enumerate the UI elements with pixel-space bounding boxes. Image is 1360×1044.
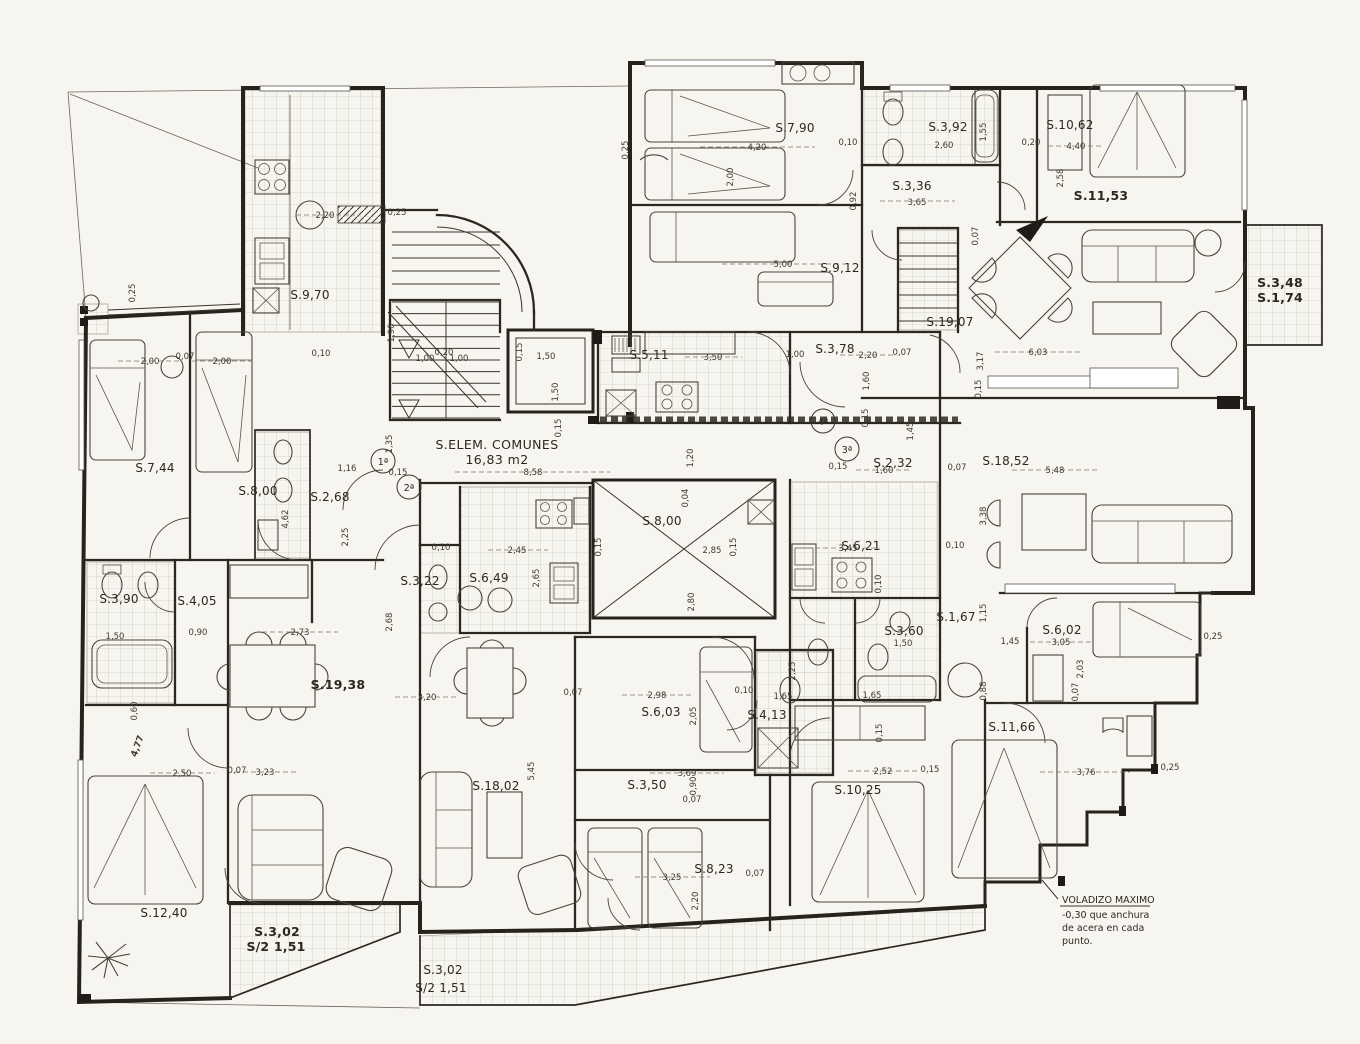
dim-label: 0,25 (1161, 763, 1180, 773)
dim-label: 3,50 (704, 353, 723, 363)
dim-label: 2,85 (703, 546, 722, 556)
dim-label: 1,55 (979, 123, 989, 142)
unit-marker-2: 2ª (404, 483, 415, 494)
dim-label: 2,68 (385, 613, 395, 632)
dim-label: 2,52 (874, 767, 893, 777)
dim-label: 5,45 (527, 762, 537, 781)
room-area-label: S.7,44 (135, 461, 174, 475)
dim-label: 3,20 (418, 693, 437, 703)
dim-label: 1,00 (416, 354, 435, 364)
dim-label: 2,60 (935, 141, 954, 151)
dim-label: 3,25 (663, 873, 682, 883)
dim-label: 2,00 (141, 357, 160, 367)
dim-label: 2,45 (508, 546, 527, 556)
room-area-label: S.12,40 (140, 906, 187, 920)
unit-marker-3: 3ª (842, 445, 853, 456)
dim-label: 1,60 (862, 372, 872, 391)
dim-label: 2,20 (859, 351, 878, 361)
dim-label: 0,15 (861, 409, 871, 428)
dim-label: 0,20 (1022, 138, 1041, 148)
unit-marker-1: 1ª (378, 457, 389, 468)
dim-label: 3,17 (976, 352, 986, 371)
dim-label: 2,50 (173, 769, 192, 779)
dim-label: 3,65 (908, 198, 927, 208)
dim-label: 1,50 (551, 383, 561, 402)
room-area-label: S.6,02 (1042, 623, 1081, 637)
dim-label: 2,00 (213, 357, 232, 367)
room-area-label: S.3,36 (892, 179, 931, 193)
pillar (1217, 396, 1240, 409)
dim-label: 1,60 (875, 466, 894, 476)
dim-label: 0,04 (681, 489, 691, 508)
dim-label: 0,15 (594, 538, 604, 557)
dim-label: 0,10 (874, 575, 884, 594)
dim-label: 2,73 (291, 628, 310, 638)
dim-label: 3,45 (839, 544, 858, 554)
dim-label: 2,03 (1076, 660, 1086, 679)
dim-label: 1,00 (450, 354, 469, 364)
room-area-label: S.4,05 (177, 594, 216, 608)
dim-label: 0,15 (921, 765, 940, 775)
dim-label: 0,10 (735, 686, 754, 696)
dim-label: 2,20 (691, 892, 701, 911)
room-area-label: S.3,60 (884, 624, 923, 638)
dim-label: 0,15 (515, 343, 525, 362)
note-line-4: punto. (1062, 936, 1092, 947)
room-area-label: S.3,92 (928, 120, 967, 134)
dim-label: 2,20 (316, 211, 335, 221)
dim-label: 2,98 (648, 691, 667, 701)
dim-label: 6,03 (1029, 348, 1048, 358)
floor-plan-drawing: 1ª 2ª 3ª 4ª S.7,90 S.3,92 S.10,62 S.3,36… (0, 0, 1360, 1044)
room-area-label: S/2 1,51 (246, 939, 305, 954)
dim-label: 0,07 (948, 463, 967, 473)
dim-label: 1,35 (385, 435, 395, 454)
note-line-1: VOLADIZO MAXIMO (1062, 895, 1155, 906)
dim-label: 3,23 (256, 768, 275, 778)
room-area-label: S.2,68 (310, 490, 349, 504)
dim-label: 2,00 (726, 168, 736, 187)
room-area-label: S.1,74 (1257, 290, 1303, 305)
dim-label: 1,96 (387, 324, 397, 343)
dim-label: 4,40 (1067, 142, 1086, 152)
room-area-label: S.10,25 (834, 783, 881, 797)
room-area-label: S.18,02 (472, 779, 519, 793)
room-area-label: S.3,22 (400, 574, 439, 588)
dim-label: 4,20 (748, 143, 767, 153)
room-area-label: S.6,49 (469, 571, 508, 585)
dim-label: 0,92 (849, 192, 859, 211)
room-area-label: S.18,52 (982, 454, 1029, 468)
dim-label: 1,20 (686, 449, 696, 468)
room-area-label: S.3,90 (99, 592, 138, 606)
dim-label: 3,05 (1052, 638, 1071, 648)
unit-marker-4: 4ª (818, 417, 829, 428)
dim-label: 0,15 (974, 380, 984, 399)
room-area-label: S/2 1,51 (415, 981, 466, 995)
dim-label: 0,15 (875, 724, 885, 743)
dim-label: 0,07 (746, 869, 765, 879)
common-elements-value: 16,83 m2 (465, 452, 528, 467)
dim-label: 0,25 (1204, 632, 1223, 642)
room-area-label: S.4,13 (747, 708, 786, 722)
dim-label: 0,25 (128, 284, 138, 303)
dim-label: 0,90 (689, 777, 699, 796)
dim-label: 0,15 (554, 419, 564, 438)
dim-label: 0,10 (432, 543, 451, 553)
room-area-label: S.9,12 (820, 261, 859, 275)
dim-label: 0,88 (979, 682, 989, 701)
dim-label: 1,50 (106, 632, 125, 642)
dim-label: 2,58 (1056, 169, 1066, 188)
dim-label: 2,65 (532, 569, 542, 588)
dim-label: 1,45 (906, 422, 916, 441)
dim-label: 2,80 (687, 593, 697, 612)
dim-label: 1,45 (1001, 637, 1020, 647)
room-area-label: S.6,03 (641, 705, 680, 719)
dim-label: 3,38 (979, 507, 989, 526)
room-area-label: S.19,07 (926, 315, 973, 329)
dim-label: 0,07 (893, 348, 912, 358)
common-elements-label: S.ELEM. COMUNES (435, 437, 558, 452)
room-area-label: S.3,02 (423, 963, 462, 977)
dim-label: 0,07 (564, 688, 583, 698)
room-area-label: S.5,11 (629, 348, 668, 362)
dim-label: 5,00 (774, 260, 793, 270)
dim-label: 5,48 (1046, 466, 1065, 476)
room-area-label: S.11,53 (1074, 188, 1129, 203)
dim-label: 0,07 (971, 227, 981, 246)
dim-label: 0,07 (176, 352, 195, 362)
dim-label: 2,25 (341, 528, 351, 547)
dim-label: 0,10 (946, 541, 965, 551)
dim-label: 2,25 (788, 662, 798, 681)
dim-label: 0,15 (729, 538, 739, 557)
dim-label: 4,62 (281, 510, 291, 529)
room-area-label: S.10,62 (1046, 118, 1093, 132)
room-area-label: S.7,90 (775, 121, 814, 135)
dim-label: 0,15 (829, 462, 848, 472)
dim-label: 1,15 (979, 604, 989, 623)
dim-label: 0,60 (130, 702, 140, 721)
room-area-label: S.8,23 (694, 862, 733, 876)
dim-label: 0,07 (228, 766, 247, 776)
dim-label: 1,65 (863, 691, 882, 701)
dim-label: 0,10 (312, 349, 331, 359)
dim-label: 1,00 (786, 350, 805, 360)
room-area-label: S.9,70 (290, 288, 329, 302)
dim-label: 8,58 (524, 468, 543, 478)
room-area-label: S.3,48 (1257, 275, 1303, 290)
room-area-label: S.3,02 (254, 924, 300, 939)
room-area-label: S.8,00 (238, 484, 277, 498)
room-area-label: S.1,67 (936, 610, 975, 624)
kitchen-s649-floor (460, 487, 590, 633)
dim-label: 0,25 (388, 208, 407, 218)
dim-label: 3,76 (1077, 768, 1096, 778)
room-area-label: S.19,38 (311, 677, 366, 692)
dim-label: 1,50 (894, 639, 913, 649)
dim-label: 1,65 (774, 692, 793, 702)
dim-label: 0,07 (1071, 683, 1081, 702)
note-line-2: -0,30 que anchura (1062, 910, 1149, 921)
dim-label: 0,90 (189, 628, 208, 638)
dim-label: 0,25 (621, 141, 631, 160)
note-line-3: de acera en cada (1062, 923, 1144, 934)
room-area-label: S.3,78 (815, 342, 854, 356)
dim-label: 1,50 (537, 352, 556, 362)
room-area-label: S.11,66 (988, 720, 1035, 734)
dim-label: 0,10 (839, 138, 858, 148)
dim-label: 1,16 (338, 464, 357, 474)
hatched-wall-piece (338, 206, 385, 223)
room-area-label: S.3,50 (627, 778, 666, 792)
floor-plan-sheet: 1ª 2ª 3ª 4ª S.7,90 S.3,92 S.10,62 S.3,36… (0, 0, 1360, 1044)
dim-label: 0,15 (389, 468, 408, 478)
dim-label: 2,05 (689, 707, 699, 726)
dim-label: 0,07 (683, 795, 702, 805)
room-area-label: S.8,00 (642, 514, 681, 528)
